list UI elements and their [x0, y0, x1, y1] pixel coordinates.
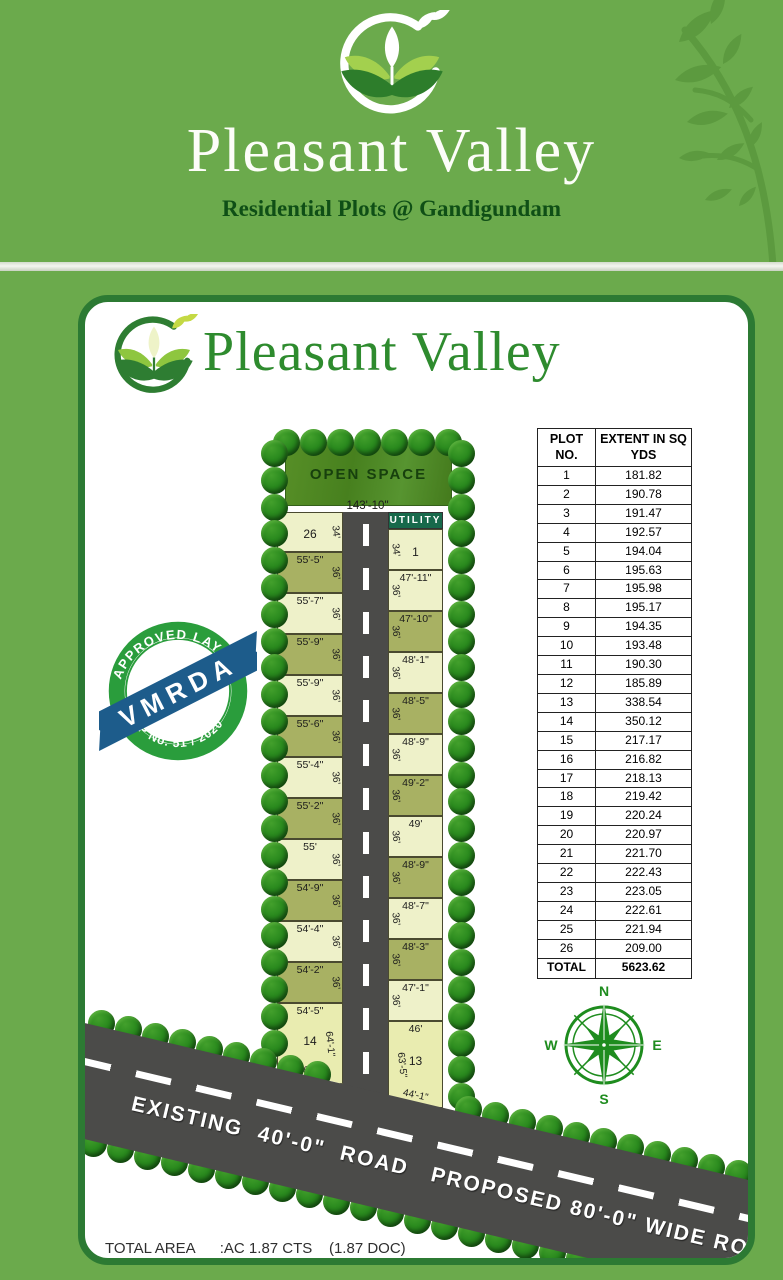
tree-icon — [261, 601, 288, 628]
table-row: 19220.24 — [538, 807, 692, 826]
tree-icon — [448, 574, 475, 601]
table-cell: 222.43 — [596, 864, 692, 883]
table-cell: 4 — [538, 523, 596, 542]
plot-depth-label: 36' — [389, 665, 401, 679]
plot-width-label: 47'-1" — [389, 981, 442, 994]
plot-depth-label: 64'-1" — [322, 1030, 336, 1056]
plot-width-label: 48'-3" — [389, 940, 442, 953]
tree-icon — [448, 815, 475, 842]
plot-width-label: 48'-9" — [389, 858, 442, 871]
table-cell: 25 — [538, 920, 596, 939]
table-cell: 350.12 — [596, 712, 692, 731]
header-divider — [0, 262, 783, 271]
table-row: 22222.43 — [538, 864, 692, 883]
table-row: 24222.61 — [538, 901, 692, 920]
plot: 49'-2"36' — [388, 775, 443, 816]
table-row: 5194.04 — [538, 542, 692, 561]
table-cell: 16 — [538, 750, 596, 769]
compass-rose-icon: N E S W — [543, 982, 665, 1108]
layout-card: Pleasant Valley OPEN SPACE 143'-10" 2634… — [78, 295, 755, 1265]
tree-icon — [448, 654, 475, 681]
compass-north-label: N — [599, 983, 609, 999]
tree-icon — [261, 1003, 288, 1030]
tree-icon — [261, 735, 288, 762]
table-cell: 12 — [538, 674, 596, 693]
plot-depth-label: 36' — [389, 706, 401, 720]
plot-depth-label: 36' — [389, 993, 401, 1007]
plot-width-label: 49'-2" — [389, 776, 442, 789]
plot-depth-label: 36' — [329, 770, 341, 784]
table-row: 16216.82 — [538, 750, 692, 769]
table-cell: 190.78 — [596, 485, 692, 504]
table-cell: 2 — [538, 485, 596, 504]
tree-icon — [448, 735, 475, 762]
tree-icon — [448, 494, 475, 521]
tree-icon — [448, 708, 475, 735]
tree-icon — [261, 896, 288, 923]
tree-icon — [327, 429, 354, 456]
tree-icon — [261, 467, 288, 494]
table-cell: 191.47 — [596, 504, 692, 523]
table-cell: 21 — [538, 845, 596, 864]
plot: 54'-4"36' — [277, 921, 343, 962]
pleasant-valley-logo-icon — [333, 10, 451, 128]
plot-width-label: 55' — [278, 840, 342, 853]
table-cell: 221.70 — [596, 845, 692, 864]
tree-icon — [448, 628, 475, 655]
plot: 47'-11"36' — [388, 570, 443, 611]
table-cell: 218.13 — [596, 769, 692, 788]
tree-icon — [448, 467, 475, 494]
plot-depth-label: 36' — [389, 788, 401, 802]
tree-icon — [448, 788, 475, 815]
compass-west-label: W — [544, 1037, 558, 1053]
plot: 49'36' — [388, 816, 443, 857]
tree-icon — [448, 440, 475, 467]
plot-depth-label: 36' — [329, 729, 341, 743]
table-row: 13338.54 — [538, 693, 692, 712]
table-row: 18219.42 — [538, 788, 692, 807]
tree-icon — [752, 1166, 755, 1193]
table-cell: 22 — [538, 864, 596, 883]
table-header-plot-no: PLOT NO. — [538, 429, 596, 467]
table-row: 2190.78 — [538, 485, 692, 504]
table-cell: 190.30 — [596, 656, 692, 675]
utility-strip: UTILITY — [388, 512, 443, 529]
table-row: 26209.00 — [538, 939, 692, 958]
table-cell: 338.54 — [596, 693, 692, 712]
plot-depth-label: 36' — [329, 893, 341, 907]
plot-1: 134' — [388, 529, 443, 570]
table-cell: 18 — [538, 788, 596, 807]
flyer-page: Pleasant Valley Residential Plots @ Gand… — [0, 0, 783, 1280]
plot-table-body: 1181.822190.783191.474192.575194.046195.… — [538, 467, 692, 959]
plot: 48'-7"36' — [388, 898, 443, 939]
tree-icon — [261, 494, 288, 521]
tree-icon — [448, 520, 475, 547]
total-area-line: TOTAL AREA :AC 1.87 CTS (1.87 DOC) — [105, 1238, 406, 1260]
plot-depth-label: 36' — [389, 747, 401, 761]
tree-icon — [261, 815, 288, 842]
plot-width-label: 48'-1" — [389, 653, 442, 666]
tree-icon — [381, 429, 408, 456]
plot-depth-label: 36' — [329, 606, 341, 620]
table-row: 1181.82 — [538, 467, 692, 486]
table-cell: 192.57 — [596, 523, 692, 542]
tree-icon — [261, 440, 288, 467]
plot-depth-label: 34' — [329, 525, 341, 539]
table-cell: 220.97 — [596, 826, 692, 845]
plot-depth-label: 36' — [329, 852, 341, 866]
table-cell: 1 — [538, 467, 596, 486]
compass-east-label: E — [652, 1037, 661, 1053]
table-cell: 195.63 — [596, 561, 692, 580]
plot-depth-label: 36' — [389, 870, 401, 884]
table-cell: 10 — [538, 637, 596, 656]
table-row: 21221.70 — [538, 845, 692, 864]
plot: 47'-1"36' — [388, 980, 443, 1021]
table-cell: 20 — [538, 826, 596, 845]
table-cell: 6 — [538, 561, 596, 580]
table-cell: 216.82 — [596, 750, 692, 769]
tree-icon — [448, 976, 475, 1003]
table-cell: 209.00 — [596, 939, 692, 958]
table-row: 4192.57 — [538, 523, 692, 542]
tree-icon — [261, 976, 288, 1003]
plot: 48'-5"36' — [388, 693, 443, 734]
table-cell: 7 — [538, 580, 596, 599]
table-cell: 221.94 — [596, 920, 692, 939]
vmrda-approval-stamp: APPROVED LAYOUT LP No. 51 / 2020 VMRDA — [99, 612, 257, 770]
table-cell: 219.42 — [596, 788, 692, 807]
compass-south-label: S — [599, 1091, 608, 1107]
table-cell: 17 — [538, 769, 596, 788]
top-width-dimension: 143'-10" — [285, 500, 450, 512]
plot-depth-label: 36' — [329, 688, 341, 702]
tree-icon — [448, 869, 475, 896]
table-cell: 223.05 — [596, 882, 692, 901]
plot-width-label: 46' — [389, 1022, 442, 1035]
table-cell: 26 — [538, 939, 596, 958]
tree-icon — [261, 842, 288, 869]
tree-icon — [261, 574, 288, 601]
table-cell: 13 — [538, 693, 596, 712]
table-cell: 193.48 — [596, 637, 692, 656]
plot-depth-label: 36' — [389, 624, 401, 638]
table-cell: 185.89 — [596, 674, 692, 693]
table-row: 6195.63 — [538, 561, 692, 580]
plot-depth-label: 36' — [389, 829, 401, 843]
table-cell: 23 — [538, 882, 596, 901]
road-centerline — [363, 524, 369, 1087]
table-header-extent: EXTENT IN SQ YDS — [596, 429, 692, 467]
tree-icon — [448, 681, 475, 708]
plot-depth-label: 36' — [329, 975, 341, 989]
plot: 48'-9"36' — [388, 734, 443, 775]
tree-icon — [261, 681, 288, 708]
tree-icon — [300, 429, 327, 456]
table-cell: 15 — [538, 731, 596, 750]
table-cell: 194.35 — [596, 618, 692, 637]
plot-depth-label: 36' — [329, 811, 341, 825]
table-row: 7195.98 — [538, 580, 692, 599]
plot-width-label: 49' — [389, 817, 442, 830]
table-cell: 11 — [538, 656, 596, 675]
plot-depth-label: 34' — [389, 542, 401, 556]
plot-13: 46'1363'-5"44'-1" — [388, 1021, 443, 1108]
tree-icon — [448, 1056, 475, 1083]
table-row: 25221.94 — [538, 920, 692, 939]
plot-depth-label: 36' — [329, 934, 341, 948]
plot-width-label: 48'-9" — [389, 735, 442, 748]
table-cell: 194.04 — [596, 542, 692, 561]
table-cell: 9 — [538, 618, 596, 637]
plot-width-label: 48'-5" — [389, 694, 442, 707]
table-row: 11190.30 — [538, 656, 692, 675]
plot-depth-label: 36' — [389, 583, 401, 597]
table-cell: 217.17 — [596, 731, 692, 750]
tree-icon — [448, 922, 475, 949]
table-cell: 220.24 — [596, 807, 692, 826]
card-title: Pleasant Valley — [203, 320, 561, 384]
plot-depth-label: 36' — [389, 911, 401, 925]
tree-icon — [261, 762, 288, 789]
table-row: 20220.97 — [538, 826, 692, 845]
plot-depth-label: 36' — [329, 565, 341, 579]
plot-width-label: 47'-11" — [389, 571, 442, 584]
header-title: Pleasant Valley — [0, 116, 783, 187]
table-row: 14350.12 — [538, 712, 692, 731]
plot-width-label: 47'-10" — [389, 612, 442, 625]
table-row: 12185.89 — [538, 674, 692, 693]
plot: 54'-2"36' — [277, 962, 343, 1003]
total-label: TOTAL — [538, 958, 596, 978]
tree-icon — [408, 429, 435, 456]
table-total-row: TOTAL 5623.62 — [538, 958, 692, 978]
tree-icon — [261, 628, 288, 655]
table-cell: 14 — [538, 712, 596, 731]
tree-icon — [448, 949, 475, 976]
table-cell: 222.61 — [596, 901, 692, 920]
table-cell: 195.17 — [596, 599, 692, 618]
tree-icon — [620, 1258, 647, 1265]
table-row: 15217.17 — [538, 731, 692, 750]
tree-icon — [448, 601, 475, 628]
tree-icon — [261, 547, 288, 574]
total-value: 5623.62 — [596, 958, 692, 978]
tree-icon — [448, 896, 475, 923]
plot-depth-label: 36' — [389, 952, 401, 966]
tree-icon — [647, 1264, 674, 1265]
table-cell: 5 — [538, 542, 596, 561]
tree-icon — [448, 762, 475, 789]
table-cell: 3 — [538, 504, 596, 523]
table-cell: 24 — [538, 901, 596, 920]
area-summary: TOTAL AREA :AC 1.87 CTS (1.87 DOC) PLOTT… — [105, 1194, 406, 1265]
plot: 47'-10"36' — [388, 611, 443, 652]
plot-depth-label: 36' — [329, 647, 341, 661]
tree-icon — [448, 547, 475, 574]
plot-width-label: 55'-7" — [278, 594, 342, 607]
table-row: 10193.48 — [538, 637, 692, 656]
table-row: 23223.05 — [538, 882, 692, 901]
tree-icon — [261, 869, 288, 896]
tree-icon — [261, 949, 288, 976]
extent-table: PLOT NO. EXTENT IN SQ YDS 1181.822190.78… — [537, 428, 692, 979]
open-space-label: OPEN SPACE — [310, 466, 427, 483]
table-cell: 181.82 — [596, 467, 692, 486]
tree-icon — [354, 429, 381, 456]
plot-width-label: 55'-4" — [278, 758, 342, 771]
plot: 48'-3"36' — [388, 939, 443, 980]
table-row: 9194.35 — [538, 618, 692, 637]
table-row: 8195.17 — [538, 599, 692, 618]
table-row: 17218.13 — [538, 769, 692, 788]
plot: 48'-9"36' — [388, 857, 443, 898]
tree-icon — [448, 1003, 475, 1030]
tree-icon — [448, 842, 475, 869]
plot-width-label: 48'-7" — [389, 899, 442, 912]
table-cell: 8 — [538, 599, 596, 618]
internal-road — [343, 512, 388, 1097]
table-row: 3191.47 — [538, 504, 692, 523]
plot-width-label: 55'-9" — [278, 676, 342, 689]
plot: 48'-1"36' — [388, 652, 443, 693]
table-cell: 195.98 — [596, 580, 692, 599]
table-cell: 19 — [538, 807, 596, 826]
header-subtitle: Residential Plots @ Gandigundam — [0, 196, 783, 222]
tree-icon — [261, 708, 288, 735]
pleasant-valley-logo-icon — [109, 314, 199, 404]
tree-icon — [448, 1030, 475, 1057]
